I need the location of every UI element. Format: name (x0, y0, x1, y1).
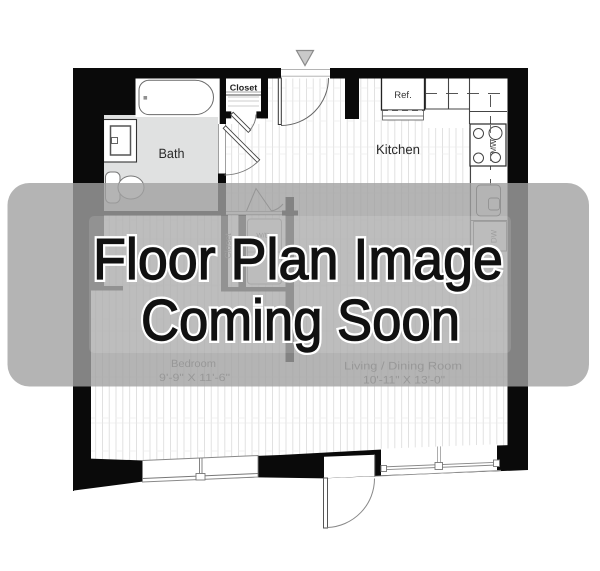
svg-text:Closet: Closet (230, 83, 258, 93)
svg-text:MW: MW (489, 139, 498, 154)
svg-text:Ref.: Ref. (394, 90, 411, 101)
svg-text:Kitchen: Kitchen (376, 142, 420, 157)
svg-text:Bath: Bath (159, 146, 185, 161)
svg-text:Coming Soon: Coming Soon (141, 288, 460, 353)
svg-text:Floor Plan Image: Floor Plan Image (93, 227, 503, 292)
